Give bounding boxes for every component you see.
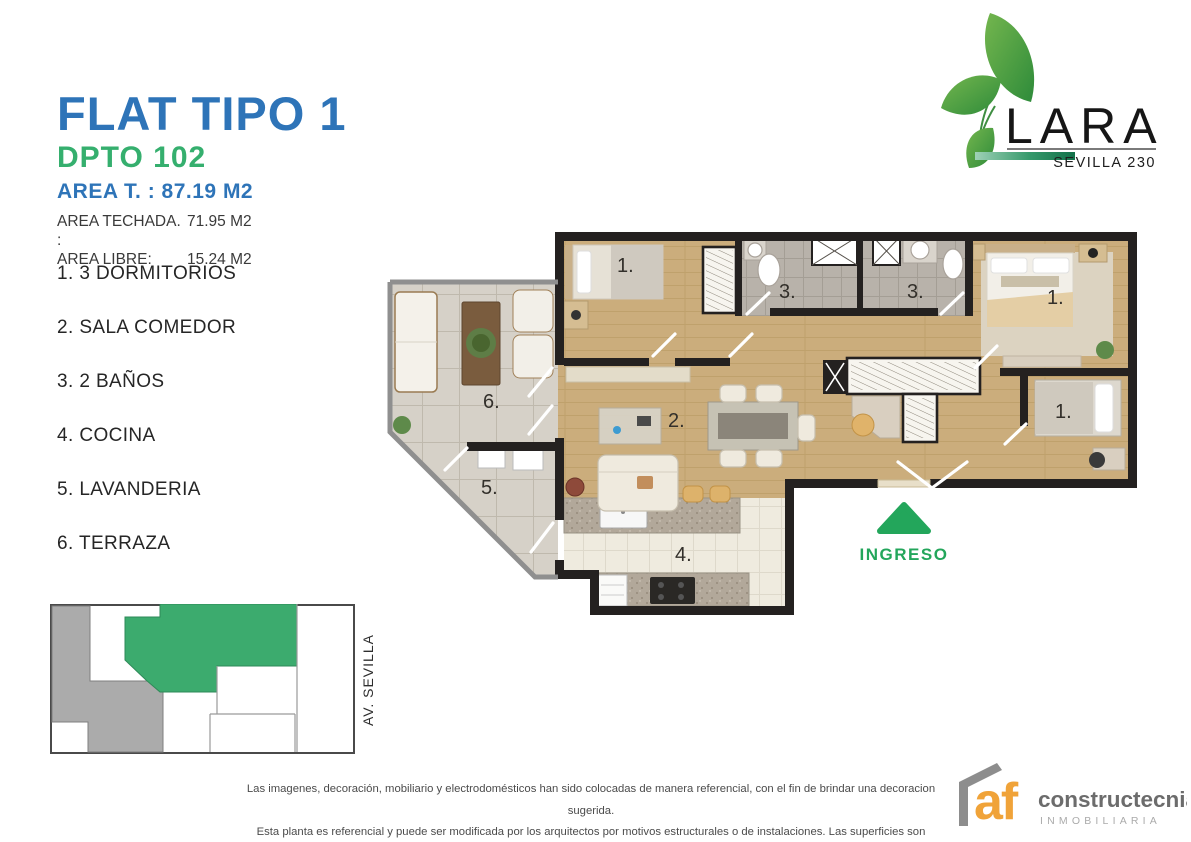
area-row: AREA TECHADA. : 71.95 M2 (57, 212, 252, 250)
area-value: 71.95 M2 (187, 212, 252, 250)
disclaimer-line: Esta planta es referencial y puede ser m… (240, 822, 942, 842)
flyer-page: FLAT TIPO 1 DPTO 102 AREA T. : 87.19 M2 … (0, 0, 1191, 842)
dining-chair (720, 385, 746, 402)
legend-item: 1. 3 DORMITORIOS (57, 263, 236, 285)
dining-chair (756, 385, 782, 402)
brand-name: LARA (1005, 98, 1160, 154)
wall-tv-2 (675, 358, 730, 366)
developer-name: constructecnia (1038, 787, 1187, 812)
disclaimer: Las imagenes, decoración, mobiliario y e… (240, 779, 942, 842)
plant-inner (472, 334, 490, 352)
street-label: AV. SEVILLA (356, 634, 380, 726)
lamp (571, 310, 581, 320)
wall-kitchen-bottom (590, 606, 794, 615)
legend-item: 2. SALA COMEDOR (57, 317, 236, 339)
bed-headboard (985, 244, 1075, 253)
dining-chair (798, 415, 815, 441)
wall-hall-bed3 (1020, 376, 1028, 426)
developer-logo: af constructecnia INMOBILIARIA (952, 760, 1187, 832)
bar-stool (710, 486, 730, 502)
desk-chair (852, 414, 874, 436)
area-label: AREA TECHADA. : (57, 212, 187, 250)
wall-top (555, 232, 1137, 241)
legend-item: 5. LAVANDERIA (57, 479, 236, 501)
terrace-chair (513, 335, 553, 378)
wall-west-mid (555, 438, 564, 520)
disclaimer-line: Las imagenes, decoración, mobiliario y e… (240, 779, 942, 822)
room-label-master: 1. (1047, 287, 1064, 309)
pillow (1033, 258, 1069, 273)
room-label-living: 2. (668, 410, 685, 432)
wall-west-upper (555, 232, 564, 365)
developer-abbr: af (974, 773, 1019, 831)
wall-west-low (555, 560, 564, 572)
legend-item: 6. TERRAZA (57, 533, 236, 555)
dining-chair (720, 450, 746, 467)
bed-headboard (565, 245, 573, 299)
floor-plan: 1. 1. 1. 2. 3. 3. 4. 5. 6. INGRESO (385, 220, 1145, 640)
fridge (598, 575, 627, 606)
brand-logo: LARA SEVILLA 230 (935, 10, 1160, 178)
room-legend: 1. 3 DORMITORIOS 2. SALA COMEDOR 3. 2 BA… (57, 263, 236, 555)
wall-master-west (965, 241, 973, 316)
toilet (943, 249, 963, 279)
terrace-chair (513, 290, 553, 332)
plant (1096, 341, 1114, 359)
room-label-laundry: 5. (481, 477, 498, 499)
pillow (577, 251, 591, 293)
table-runner (718, 413, 788, 439)
unit-number: DPTO 102 (57, 141, 206, 175)
wall-bed1-bath (735, 241, 742, 316)
wardrobe-hatch (906, 398, 934, 438)
legend-item: 3. 2 BAÑOS (57, 371, 236, 393)
wardrobe-hatch (851, 362, 976, 390)
ingreso-label: INGRESO (860, 545, 949, 564)
room-label-kitchen: 4. (675, 544, 692, 566)
ingreso-arrow-icon (880, 505, 928, 531)
room-label-bath1: 3. (779, 281, 796, 303)
room-label-bedroom3: 1. (1055, 401, 1072, 423)
decor-bowl (613, 426, 621, 434)
lamp (1088, 248, 1098, 258)
accent-pillow (1001, 276, 1059, 287)
room-label-bedroom1: 1. (617, 255, 634, 277)
sink (748, 243, 762, 257)
leaf-medium (941, 75, 1001, 114)
wall-kitchen-right (785, 479, 794, 615)
wall-bath-bottom (770, 308, 938, 316)
developer-tagline: INMOBILIARIA (1040, 815, 1161, 827)
dining-chair (756, 450, 782, 467)
stove (650, 577, 695, 604)
wall-tv-1 (564, 358, 649, 366)
tv-console (566, 367, 690, 382)
pillow (991, 258, 1027, 273)
small-plant (393, 416, 411, 434)
leaf-small (966, 128, 994, 168)
wall-laundry-divider (467, 442, 555, 451)
wall-right (1128, 232, 1137, 488)
toilet (758, 254, 780, 286)
nightstand (973, 244, 985, 260)
sink (911, 241, 929, 259)
total-area: AREA T. : 87.19 M2 (57, 180, 253, 204)
wall-master-bed3 (1000, 368, 1128, 376)
bar-stool (683, 486, 703, 502)
wall-bath-divider (857, 235, 863, 316)
coffee-table (599, 408, 661, 444)
wall-bottom-right (930, 479, 1137, 488)
brand-project: SEVILLA 230 (1053, 155, 1156, 171)
page-title: FLAT TIPO 1 (57, 86, 347, 141)
bench (1003, 356, 1081, 367)
room-label-terrace: 6. (483, 391, 500, 413)
wall-bottom-mid (785, 479, 878, 488)
room-label-bath2: 3. (907, 281, 924, 303)
entrance-marker: INGRESO (860, 505, 949, 564)
area-details: AREA TECHADA. : 71.95 M2 AREA LIBRE: 15.… (57, 212, 252, 269)
side-table (566, 478, 584, 496)
closet-hatch (706, 250, 733, 310)
legend-item: 4. COCINA (57, 425, 236, 447)
site-key-plan (50, 604, 355, 754)
decor-book (637, 416, 651, 426)
desk-chair (1089, 452, 1105, 468)
sofa-pillow (637, 476, 653, 489)
pillow (1095, 384, 1113, 432)
